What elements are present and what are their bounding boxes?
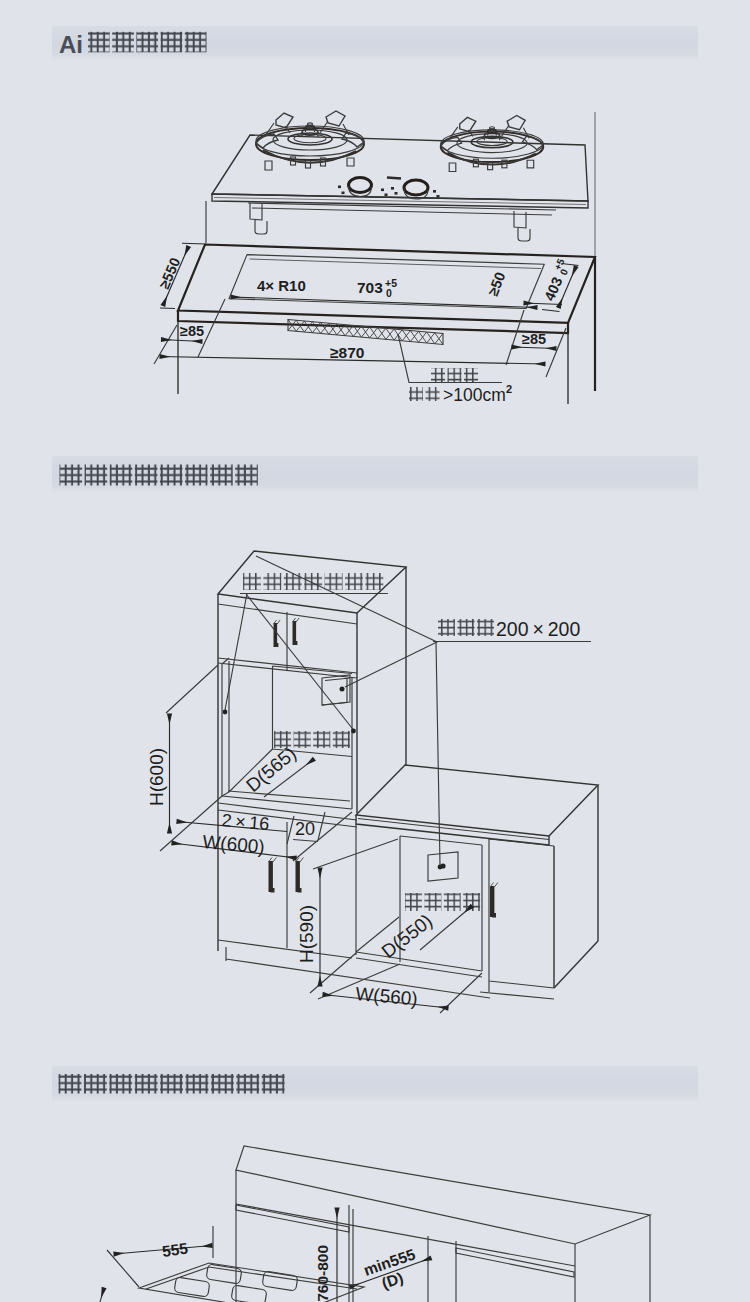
svg-text:W(600): W(600)	[202, 831, 266, 857]
svg-text:2 × 16: 2 × 16	[221, 810, 270, 834]
svg-text:200 × 200: 200 × 200	[496, 618, 580, 640]
svg-text:≥85: ≥85	[522, 331, 546, 347]
svg-text:0: 0	[386, 287, 392, 299]
svg-text:(760-800: (760-800	[314, 1245, 331, 1302]
svg-text:703: 703	[357, 279, 383, 296]
svg-text:2: 2	[506, 383, 512, 395]
svg-text:≥85: ≥85	[180, 323, 204, 339]
svg-text:W(560): W(560)	[355, 983, 419, 1009]
svg-text:≥50: ≥50	[485, 270, 509, 298]
svg-text:Ai: Ai	[59, 31, 83, 58]
svg-text:20: 20	[295, 819, 315, 839]
svg-text:H(590): H(590)	[296, 905, 317, 963]
svg-text:555: 555	[161, 1239, 189, 1259]
svg-text:≥550: ≥550	[156, 255, 183, 291]
svg-text:H(600): H(600)	[146, 748, 167, 806]
svg-text:≥870: ≥870	[330, 344, 364, 361]
svg-text:0: 0	[558, 267, 570, 277]
svg-text:4× R10: 4× R10	[257, 277, 306, 294]
svg-text:D(550): D(550)	[378, 910, 437, 962]
svg-text:>100cm: >100cm	[443, 385, 506, 405]
